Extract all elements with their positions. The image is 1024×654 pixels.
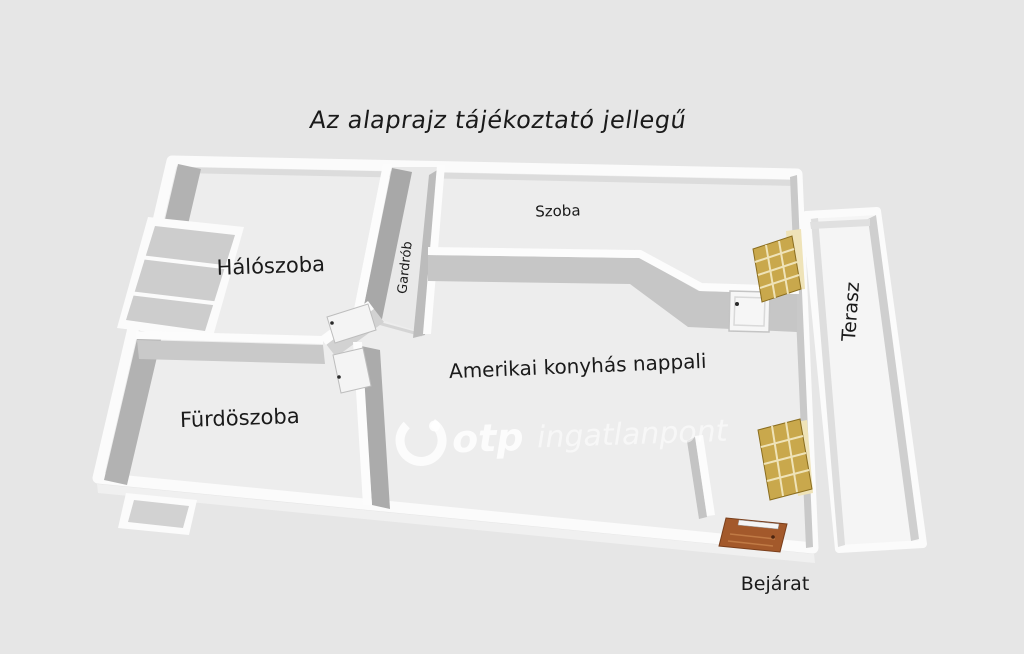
terrace-area: [806, 211, 923, 549]
watermark-suffix: ingatlanpont: [536, 414, 729, 456]
floorplan-canvas: otp ingatlanpont Az alaprajz tájékoztató…: [0, 0, 1024, 654]
watermark-brand: otp: [451, 415, 524, 461]
entrance-door: [719, 518, 787, 552]
entrance-label: Bejárat: [741, 573, 810, 595]
terrace-label: Terasz: [838, 281, 864, 343]
bedroom-door-handle: [330, 321, 334, 325]
szoba-door-handle: [735, 302, 739, 306]
floorplan-page: otp ingatlanpont Az alaprajz tájékoztató…: [0, 0, 1024, 654]
room-label: Szoba: [535, 201, 581, 220]
page-title: Az alaprajz tájékoztató jellegű: [308, 106, 688, 134]
bathroom-door-handle: [337, 375, 341, 379]
bathroom-label: Fürdöszoba: [180, 404, 300, 432]
bathroom-window: [118, 493, 197, 535]
entrance-door-handle: [771, 535, 775, 539]
bedroom-label: Hálószoba: [216, 252, 325, 280]
